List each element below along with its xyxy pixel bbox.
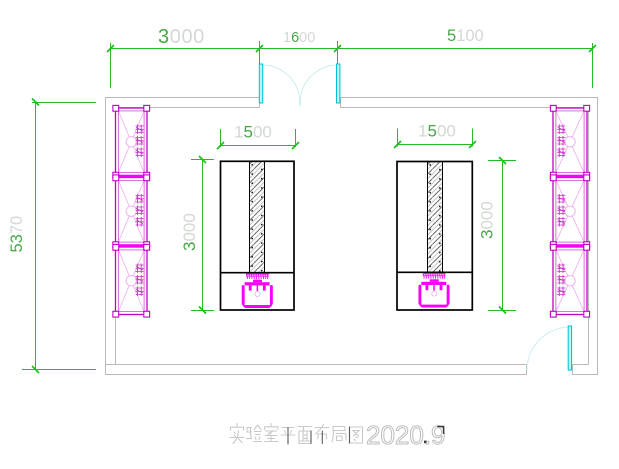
svg-text:3000: 3000 — [180, 213, 199, 251]
svg-text:5100: 5100 — [447, 27, 484, 45]
svg-text:5370: 5370 — [8, 216, 26, 253]
svg-text:9: 9 — [431, 420, 445, 450]
svg-text:1600: 1600 — [283, 30, 315, 46]
svg-text:1500: 1500 — [418, 122, 456, 141]
svg-text:1500: 1500 — [234, 123, 272, 142]
svg-text:3000: 3000 — [478, 201, 497, 239]
svg-text:2020.: 2020. — [366, 420, 431, 450]
svg-text:3000: 3000 — [158, 26, 205, 48]
